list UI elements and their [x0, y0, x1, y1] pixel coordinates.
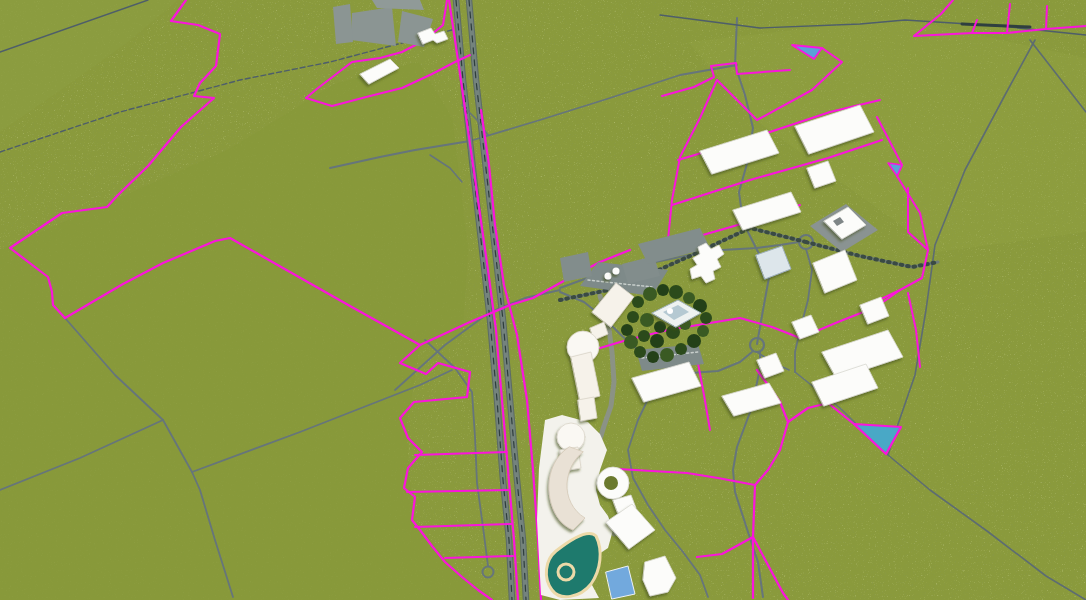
tree — [640, 313, 654, 327]
tree — [638, 330, 650, 342]
tree — [621, 324, 633, 336]
tree — [634, 346, 646, 358]
tree — [666, 325, 680, 339]
tree — [657, 284, 669, 296]
pad-topleft-1 — [351, 7, 396, 46]
tree — [700, 312, 712, 324]
tree — [683, 292, 695, 304]
tree — [627, 311, 639, 323]
tree — [697, 325, 709, 337]
strip-d-building-court — [604, 476, 618, 490]
strip-rotunda-2 — [557, 423, 585, 451]
strip-canopy-2 — [613, 268, 620, 275]
tree — [654, 321, 666, 333]
strip-connector-2 — [578, 397, 597, 421]
center-tower — [667, 308, 673, 314]
tree — [624, 335, 638, 349]
pad-topleft-4 — [333, 4, 353, 44]
tree — [687, 334, 701, 348]
tree — [675, 343, 687, 355]
tree — [647, 351, 659, 363]
strip-canopy-1 — [605, 273, 612, 280]
tree — [643, 287, 657, 301]
tree — [669, 285, 683, 299]
map-viewport[interactable] — [0, 0, 1086, 600]
tree — [660, 348, 674, 362]
tree — [650, 334, 664, 348]
parcel-ne-net-4 — [1046, 6, 1047, 29]
tree — [632, 296, 644, 308]
map-canvas[interactable] — [0, 0, 1086, 600]
